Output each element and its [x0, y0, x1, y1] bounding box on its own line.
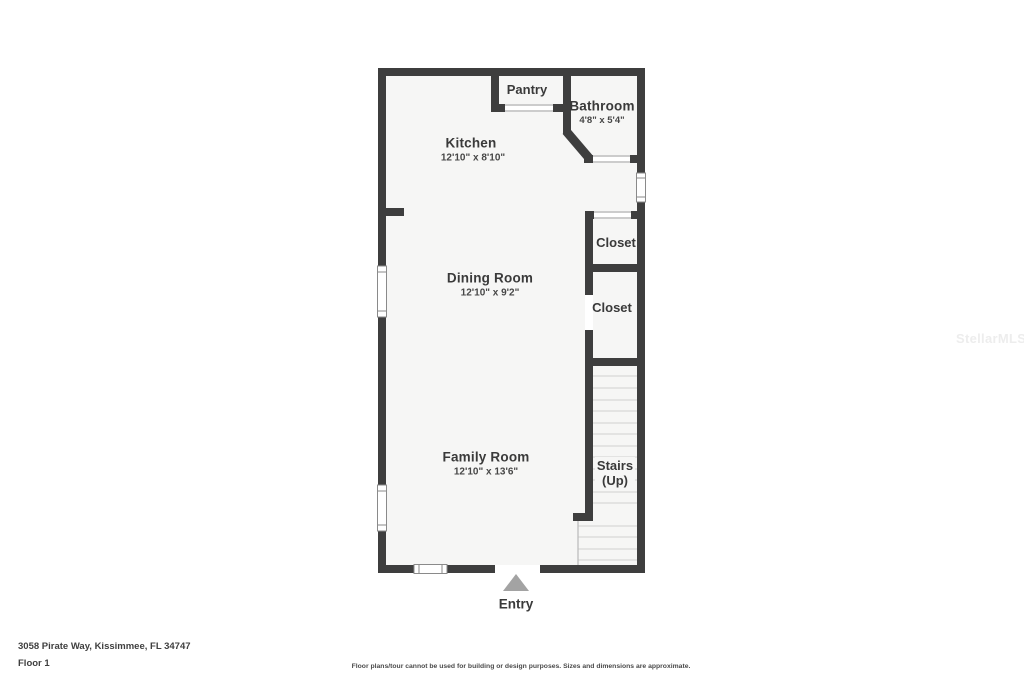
pantry-door-opening [505, 104, 553, 112]
kitchen-label: Kitchen [446, 137, 497, 152]
stairs-label-name: Stairs [597, 458, 633, 473]
hall-window-icon [637, 173, 646, 202]
pantry-label: Pantry [507, 83, 547, 97]
entry-label: Entry [499, 598, 534, 613]
floor-area [378, 68, 645, 573]
dining-room-dims: 12'10" x 9'2" [461, 288, 520, 299]
bathroom-dims: 4'8" x 5'4" [579, 116, 624, 126]
closet-upper-door-opening [594, 211, 631, 219]
dining-room-label: Dining Room [447, 272, 533, 287]
floorplan-drawing [0, 0, 1024, 682]
family-room-dims: 12'10" x 13'6" [454, 467, 518, 478]
bathroom-door-opening [593, 155, 630, 163]
closet-upper-label: Closet [596, 236, 636, 250]
stairs-label-direction: (Up) [597, 473, 633, 488]
disclaimer-text: Floor plans/tour cannot be used for buil… [0, 663, 1024, 670]
stairs-label: Stairs (Up) [595, 457, 635, 489]
floorplan-canvas: Pantry Bathroom 4'8" x 5'4" Kitchen 12'1… [0, 0, 1024, 682]
family-side-window-icon [378, 485, 387, 531]
kitchen-dims: 12'10" x 8'10" [441, 153, 505, 164]
family-bottom-window-icon [414, 565, 447, 574]
stellar-mls-watermark: StellarMLS [956, 331, 1024, 346]
bathroom-label: Bathroom [569, 100, 634, 115]
property-address: 3058 Pirate Way, Kissimmee, FL 34747 [18, 641, 191, 652]
dining-window-icon [378, 266, 387, 317]
family-room-label: Family Room [443, 451, 530, 466]
closet-lower-label: Closet [592, 301, 632, 315]
entry-arrow-icon [503, 574, 529, 591]
entry-door-opening [495, 565, 540, 573]
